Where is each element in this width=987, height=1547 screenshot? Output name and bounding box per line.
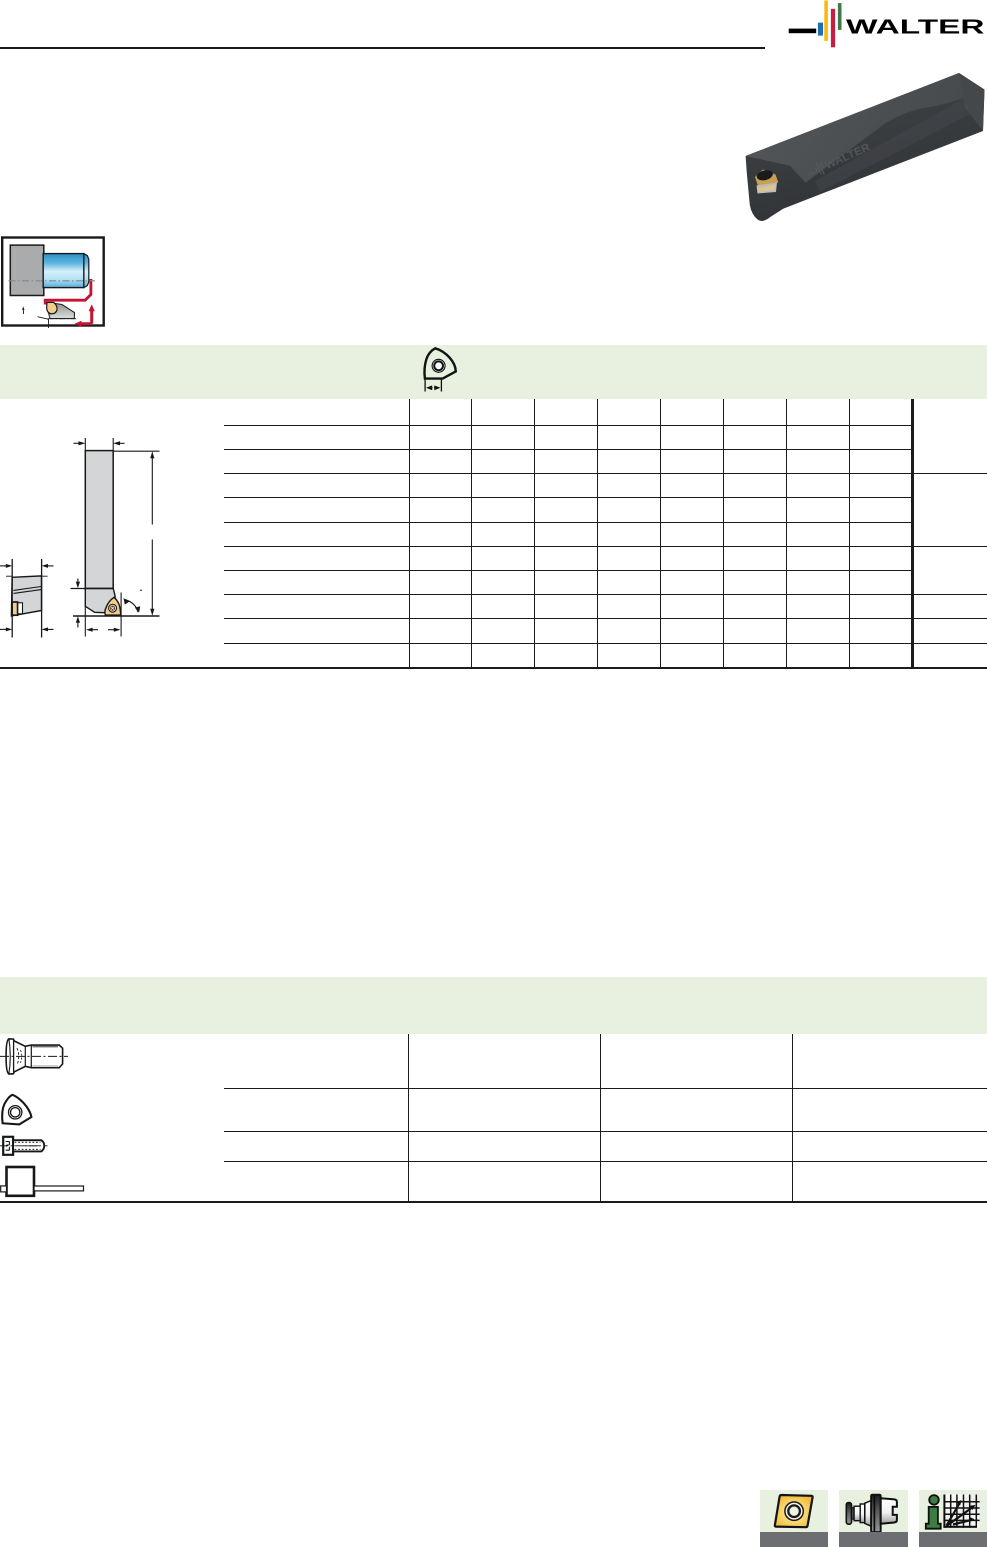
svg-text:WALTER: WALTER bbox=[846, 16, 985, 38]
